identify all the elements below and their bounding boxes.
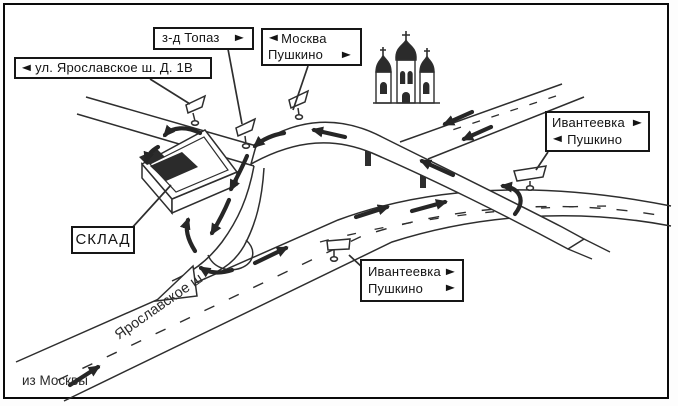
ivanteevka-label: Ивантеевка [552, 115, 625, 131]
right-arrow-icon: ► [630, 118, 645, 129]
moscow-pushkino-sign: ◄ Москва Пушкино ► [261, 28, 362, 66]
left-arrow-icon: ◄ [19, 63, 34, 74]
street-sign: ◄ ул. Ярославское ш. Д. 1В [14, 57, 212, 79]
pushkino-row: Пушкино ► [268, 47, 355, 63]
from-moscow-label: из Москвы [22, 373, 88, 388]
route-arrow [412, 202, 445, 211]
sklad-label: СКЛАД [75, 231, 130, 250]
street-sign-label: ул. Ярославское ш. Д. 1В [35, 60, 193, 76]
loop-ramp [208, 240, 253, 270]
pushkino-row: ◄ Пушкино [552, 132, 643, 148]
signpost-ivanteevka-right-icon [514, 166, 546, 190]
pushkino-row: Пушкино ► [368, 281, 456, 297]
signpost-ivanteevka-bottom-icon [327, 239, 350, 261]
pushkino-label: Пушкино [567, 132, 622, 148]
topaz-sign-label: з-д Топаз [162, 30, 220, 46]
moscow-label: Москва [281, 31, 327, 47]
leader-street [150, 79, 190, 104]
pushkino-label: Пушкино [368, 281, 423, 297]
sklad-sign: СКЛАД [71, 226, 135, 254]
ivanteevka-label: Ивантеевка [368, 264, 441, 280]
ivanteevka-pushkino-right-sign: Ивантеевка ► ◄ Пушкино [545, 111, 650, 152]
highway-road [16, 190, 671, 401]
route-arrow [212, 200, 229, 233]
ivanteevka-row: Ивантеевка ► [368, 264, 456, 280]
moscow-row: ◄ Москва [268, 31, 355, 47]
ivanteevka-row: Ивантеевка ► [552, 115, 643, 131]
route-arrow [464, 127, 491, 139]
right-arrow-icon: ► [443, 267, 458, 278]
route-arrow [165, 128, 200, 135]
pushkino-label: Пушкино [268, 47, 323, 63]
route-map: ◄ ул. Ярославское ш. Д. 1В з-д Топаз ► ◄… [0, 0, 678, 406]
right-arrow-icon: ► [232, 33, 247, 44]
right-arrow-icon: ► [443, 283, 458, 294]
warehouse-compound [139, 130, 237, 213]
leader-topaz [228, 49, 242, 124]
signpost-street-icon [186, 96, 205, 125]
route-arrow [187, 220, 195, 251]
topaz-sign: з-д Топаз ► [153, 27, 254, 50]
church-icon [373, 31, 440, 103]
leader-sklad [131, 185, 171, 229]
route-arrows [70, 112, 521, 385]
left-arrow-icon: ◄ [266, 33, 281, 44]
ivanteevka-pushkino-bottom-sign: Ивантеевка ► Пушкино ► [360, 259, 464, 302]
left-arrow-icon: ◄ [550, 134, 565, 145]
signpost-topaz-icon [236, 119, 255, 148]
right-arrow-icon: ► [339, 50, 354, 61]
